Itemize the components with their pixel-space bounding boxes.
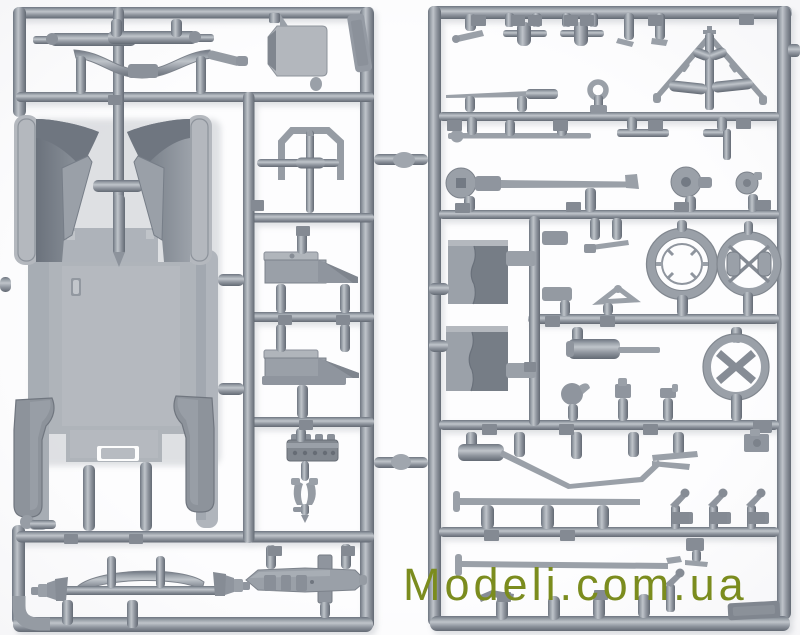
svg-text:Modeli.com.ua: Modeli.com.ua — [403, 559, 748, 610]
